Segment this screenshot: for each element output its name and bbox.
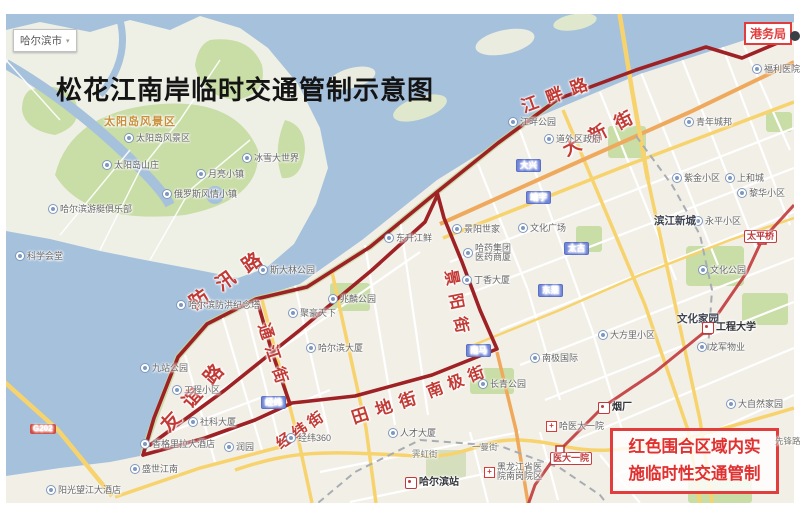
poi-label[interactable]: 俄罗斯风情小镇	[162, 189, 237, 199]
label-text: 兆麟公园	[340, 295, 376, 304]
label-text: 太阳岛山庄	[114, 161, 159, 170]
label-text: 太阳岛风景区	[104, 117, 176, 128]
poi-label[interactable]: 文化广场	[518, 223, 566, 233]
label-text: 人才大厦	[400, 429, 436, 438]
poi-label[interactable]: 长青公园	[478, 379, 526, 389]
poi-icon	[388, 428, 398, 438]
label-text: 香格里拉大酒店	[152, 440, 215, 449]
label-text: 九站公园	[152, 364, 188, 373]
poi-icon	[478, 379, 488, 389]
port-poi-dot	[790, 31, 800, 41]
poi-label[interactable]: 工程小区	[172, 385, 220, 395]
poi-icon	[172, 385, 182, 395]
label-text: 院南岗院区	[497, 472, 542, 481]
label-text: 东升江鲜	[396, 234, 432, 243]
label-text: 黎华小区	[749, 189, 785, 198]
poi-label[interactable]: +黑龙江省医院南岗院区	[484, 463, 542, 481]
metro-icon	[405, 477, 417, 489]
poi-label[interactable]: 大方里小区	[598, 330, 655, 340]
poi-icon	[188, 417, 198, 427]
road-badge: 靖宇	[526, 191, 551, 204]
label-text: 工程大学	[716, 323, 756, 333]
poi-label[interactable]: 盛世江南	[130, 464, 178, 474]
poi-icon	[196, 169, 206, 179]
poi-label[interactable]: 太阳岛风景区	[124, 133, 190, 143]
label-text: 先锋路	[775, 437, 800, 446]
poi-icon	[384, 233, 394, 243]
label-text: 聚豪天下	[300, 309, 336, 318]
label-text: 经纬360	[298, 434, 331, 443]
label-text: 哈尔滨游艇俱乐部	[60, 205, 132, 214]
chevron-down-icon: ▾	[66, 37, 70, 45]
label-text: 东莱	[542, 286, 559, 295]
metro-station[interactable]: 太平桥	[744, 230, 777, 243]
poi-icon	[176, 300, 186, 310]
poi-icon	[697, 342, 707, 352]
poi-icon	[463, 248, 473, 258]
poi-label[interactable]: 月亮小镇	[196, 169, 244, 179]
poi-label[interactable]: 润园	[224, 442, 254, 452]
poi-label[interactable]: 哈尔滨防洪纪念塔	[176, 300, 260, 310]
notice-line-2: 施临时性交通管制	[613, 461, 776, 488]
poi-label[interactable]: 福利医院	[752, 64, 800, 74]
highway-badge: G202	[30, 424, 56, 434]
poi-label[interactable]: 东升江鲜	[384, 233, 432, 243]
label-text: 大自然家园	[738, 400, 783, 409]
label-text: 盛世江南	[142, 465, 178, 474]
label-text: 经纬	[265, 398, 282, 407]
poi-icon	[452, 224, 462, 234]
poi-icon	[130, 464, 140, 474]
poi-text: 哈药集团医药商厦	[475, 244, 511, 262]
poi-icon	[752, 64, 762, 74]
label-text: 太阳岛风景区	[136, 134, 190, 143]
poi-label[interactable]: 永平小区	[693, 216, 741, 226]
poi-label[interactable]: 南极国际	[530, 353, 578, 363]
road-badge: 经纬	[261, 396, 286, 409]
label-text: 哈医大一院	[559, 422, 604, 431]
poi-label[interactable]: 黎华小区	[737, 188, 785, 198]
label-text: 道外区政府	[556, 135, 601, 144]
poi-icon	[140, 439, 150, 449]
label-text: 太古	[568, 244, 585, 253]
metro-station[interactable]: 烟厂	[598, 402, 632, 414]
label-text: 哈尔滨大厦	[318, 344, 363, 353]
poi-icon	[737, 188, 747, 198]
label-text: 靖宇	[530, 193, 547, 202]
poi-icon	[328, 294, 338, 304]
poi-label[interactable]: 青年城邦	[684, 117, 732, 127]
poi-label[interactable]: 龙军物业	[697, 342, 745, 352]
poi-label[interactable]: 哈尔滨游艇俱乐部	[48, 204, 132, 214]
label-text: 润园	[236, 443, 254, 452]
notice-line-1: 红色围合区域内实	[613, 434, 776, 461]
poi-icon	[124, 133, 134, 143]
poi-label[interactable]: 聚豪天下	[288, 308, 336, 318]
poi-label[interactable]: 九站公园	[140, 363, 188, 373]
poi-text: 黑龙江省医院南岗院区	[497, 463, 542, 481]
label-text: 哈尔滨站	[419, 478, 459, 488]
label-text: 俄罗斯风情小镇	[174, 190, 237, 199]
hospital-icon: +	[484, 467, 495, 478]
poi-icon	[286, 433, 296, 443]
label-text: 哈尔滨防洪纪念塔	[188, 301, 260, 310]
poi-label[interactable]: 太阳岛山庄	[102, 160, 159, 170]
poi-icon	[242, 153, 252, 163]
label-text: 斯大林公园	[270, 266, 315, 275]
label-text: 福利医院	[764, 65, 800, 74]
road-badge: 东莱	[538, 284, 563, 297]
compound-label: 滨江新城	[654, 216, 696, 227]
poi-icon	[46, 485, 56, 495]
poi-label[interactable]: 阳光望江大酒店	[46, 485, 121, 495]
poi-icon	[306, 343, 316, 353]
poi-label[interactable]: 上和城	[725, 173, 764, 183]
label-text: 医大一院	[553, 454, 589, 463]
poi-label[interactable]: 科学会堂	[15, 251, 63, 261]
poi-label[interactable]: 丁香大厦	[462, 275, 510, 285]
label-text: 月亮小镇	[208, 170, 244, 179]
road-badge: 大兴	[516, 159, 541, 172]
label-text: 丁香大厦	[474, 276, 510, 285]
traffic-control-notice: 红色围合区域内实 施临时性交通管制	[610, 428, 779, 494]
label-text: 社科大厦	[200, 418, 236, 427]
label-text: 长青公园	[490, 380, 526, 389]
poi-label[interactable]: 景阳世家	[452, 224, 500, 234]
label-text: 阳光望江大酒店	[58, 486, 121, 495]
label-text: 永平小区	[705, 217, 741, 226]
poi-label[interactable]: 文化公园	[698, 265, 746, 275]
label-text: 青年城邦	[696, 118, 732, 127]
label-text: 上和城	[737, 174, 764, 183]
poi-icon	[140, 363, 150, 373]
label-text: 冰雪大世界	[254, 154, 299, 163]
port-authority-label: 港务局	[750, 27, 786, 41]
street-label-small: 先锋路	[775, 437, 800, 446]
poi-label[interactable]: 香格里拉大酒店	[140, 439, 215, 449]
metro-station[interactable]: 医大一院	[550, 452, 592, 465]
poi-icon	[544, 134, 554, 144]
road-badge: 南马	[466, 344, 491, 357]
label-text: G202	[33, 425, 53, 433]
label-text: 太平桥	[747, 232, 774, 241]
poi-icon	[102, 160, 112, 170]
poi-icon	[698, 265, 708, 275]
poi-label[interactable]: 社科大厦	[188, 417, 236, 427]
hospital-icon: +	[546, 421, 557, 432]
road-badge: 太古	[564, 242, 589, 255]
label-text: 龙军物业	[709, 343, 745, 352]
poi-label[interactable]: 斯大林公园	[258, 265, 315, 275]
metro-icon	[702, 322, 714, 334]
poi-label[interactable]: 冰雪大世界	[242, 153, 299, 163]
metro-icon	[598, 402, 610, 414]
poi-icon	[48, 204, 58, 214]
scenic-area-label: 太阳岛风景区	[104, 117, 176, 128]
label-text: 江畔公园	[520, 118, 556, 127]
poi-icon	[726, 399, 736, 409]
poi-icon	[684, 117, 694, 127]
poi-icon	[15, 251, 25, 261]
city-selector[interactable]: 哈尔滨市 ▾	[13, 29, 77, 52]
city-selector-label: 哈尔滨市	[20, 33, 62, 48]
poi-label[interactable]: 紫金小区	[672, 173, 720, 183]
street-label-small: 霁虹街	[412, 450, 438, 459]
label-text: 烟厂	[612, 403, 632, 413]
label-text: 文化公园	[710, 266, 746, 275]
poi-label[interactable]: 人才大厦	[388, 428, 436, 438]
label-text: 科学会堂	[27, 252, 63, 261]
label-text: 紫金小区	[684, 174, 720, 183]
label-text: 景阳世家	[464, 225, 500, 234]
label-text: 南马	[470, 346, 487, 355]
poi-label[interactable]: 经纬360	[286, 433, 331, 443]
poi-label[interactable]: 道外区政府	[544, 134, 601, 144]
poi-icon	[530, 353, 540, 363]
poi-label[interactable]: 哈药集团医药商厦	[463, 244, 511, 262]
label-text: 医药商厦	[475, 253, 511, 262]
poi-icon	[672, 173, 682, 183]
poi-label[interactable]: 哈尔滨大厦	[306, 343, 363, 353]
poi-icon	[258, 265, 268, 275]
poi-icon	[508, 117, 518, 127]
map-title: 松花江南岸临时交通管制示意图	[56, 70, 434, 107]
poi-icon	[224, 442, 234, 452]
poi-icon	[598, 330, 608, 340]
label-text: 大方里小区	[610, 331, 655, 340]
poi-icon	[162, 189, 172, 199]
label-text: 工程小区	[184, 386, 220, 395]
poi-icon	[288, 308, 298, 318]
label-text: 一曼街	[472, 443, 498, 452]
poi-icon	[725, 173, 735, 183]
map-screenshot: 松花江南岸临时交通管制示意图 哈尔滨市 ▾ 港务局 红色围合区域内实 施临时性交…	[0, 0, 800, 520]
metro-station[interactable]: 工程大学	[702, 322, 756, 334]
poi-label[interactable]: 兆麟公园	[328, 294, 376, 304]
label-text: 滨江新城	[654, 216, 696, 227]
label-text: 大兴	[520, 161, 537, 170]
label-text: 霁虹街	[412, 450, 438, 459]
label-text: 南极国际	[542, 354, 578, 363]
poi-icon	[462, 275, 472, 285]
poi-icon	[518, 223, 528, 233]
poi-label[interactable]: 大自然家园	[726, 399, 783, 409]
poi-label[interactable]: +哈医大一院	[546, 421, 604, 432]
street-label-small: 一曼街	[472, 443, 498, 452]
port-authority-callout: 港务局	[744, 22, 792, 45]
metro-station[interactable]: 哈尔滨站	[405, 477, 459, 489]
label-text: 文化广场	[530, 224, 566, 233]
poi-label[interactable]: 江畔公园	[508, 117, 556, 127]
